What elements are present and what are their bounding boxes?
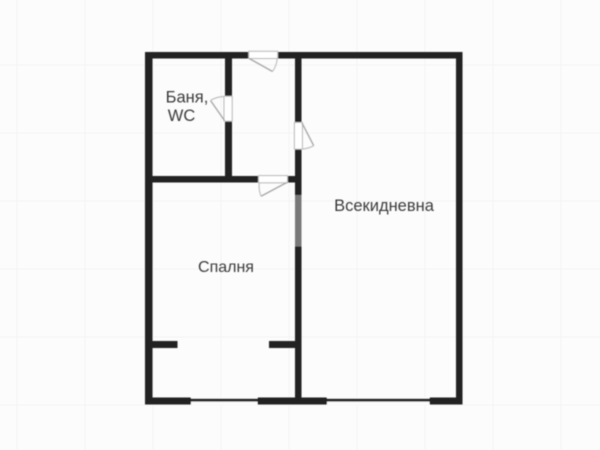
svg-text:Всекидневна: Всекидневна xyxy=(334,197,435,215)
svg-text:Баня,: Баня, xyxy=(166,89,209,107)
svg-text:Спалня: Спалня xyxy=(198,259,254,276)
svg-text:WC: WC xyxy=(168,107,196,125)
